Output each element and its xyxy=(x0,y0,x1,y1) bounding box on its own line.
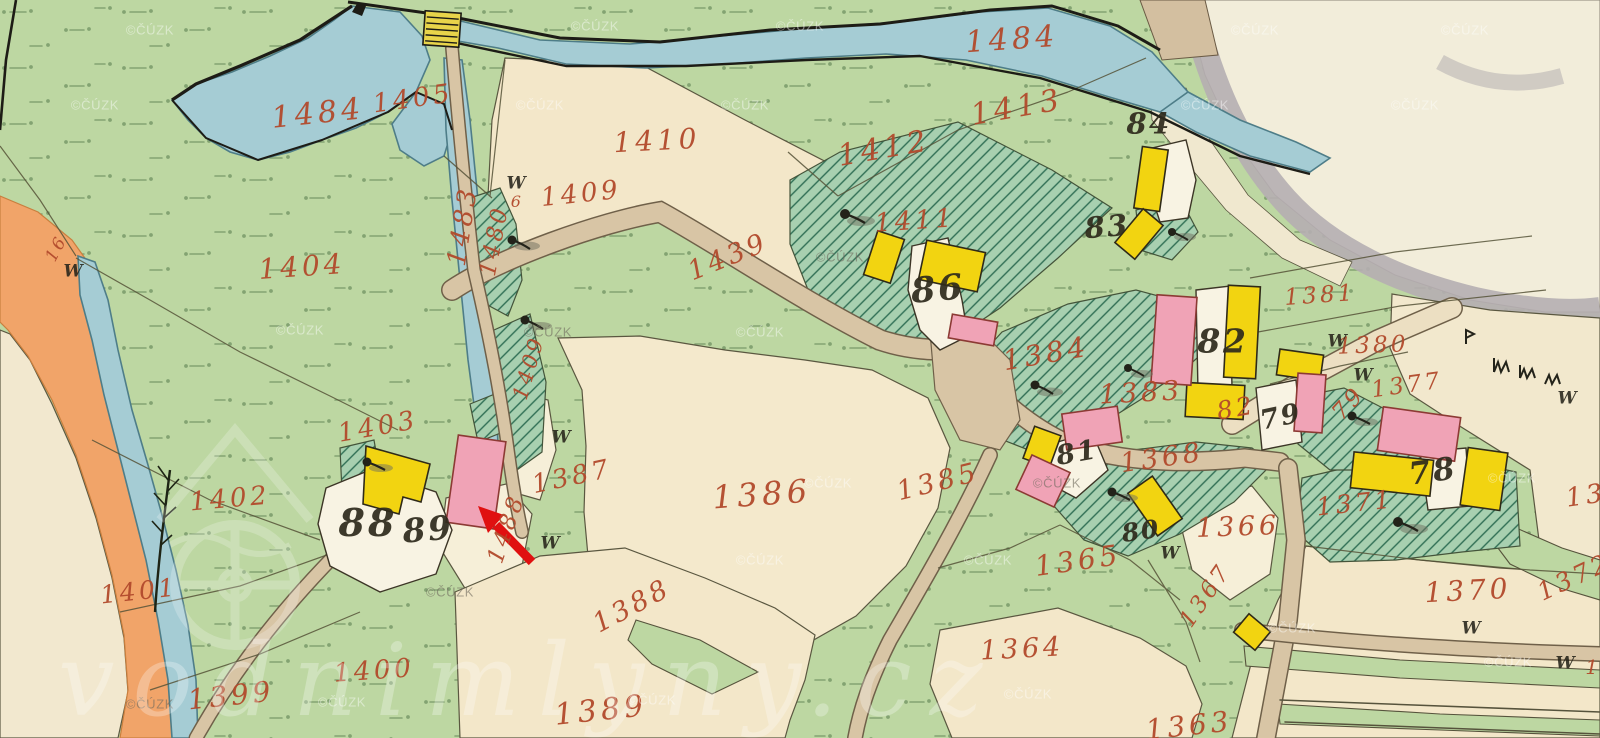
building-78b xyxy=(1460,447,1508,510)
building-79 xyxy=(1294,373,1326,433)
bridge xyxy=(423,11,461,47)
map-canvas xyxy=(0,0,1600,738)
cadastral-map: 1484 1405 1484 1410 1412 1413 1409 1439 … xyxy=(0,0,1600,738)
building-82 xyxy=(1151,295,1197,386)
building-78a xyxy=(1350,452,1433,496)
